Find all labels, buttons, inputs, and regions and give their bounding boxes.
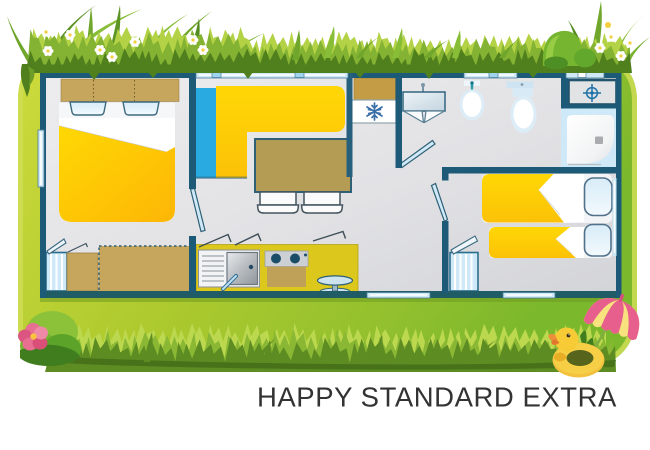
svg-text:HAPPY STANDARD EXTRA: HAPPY STANDARD EXTRA: [257, 382, 617, 413]
